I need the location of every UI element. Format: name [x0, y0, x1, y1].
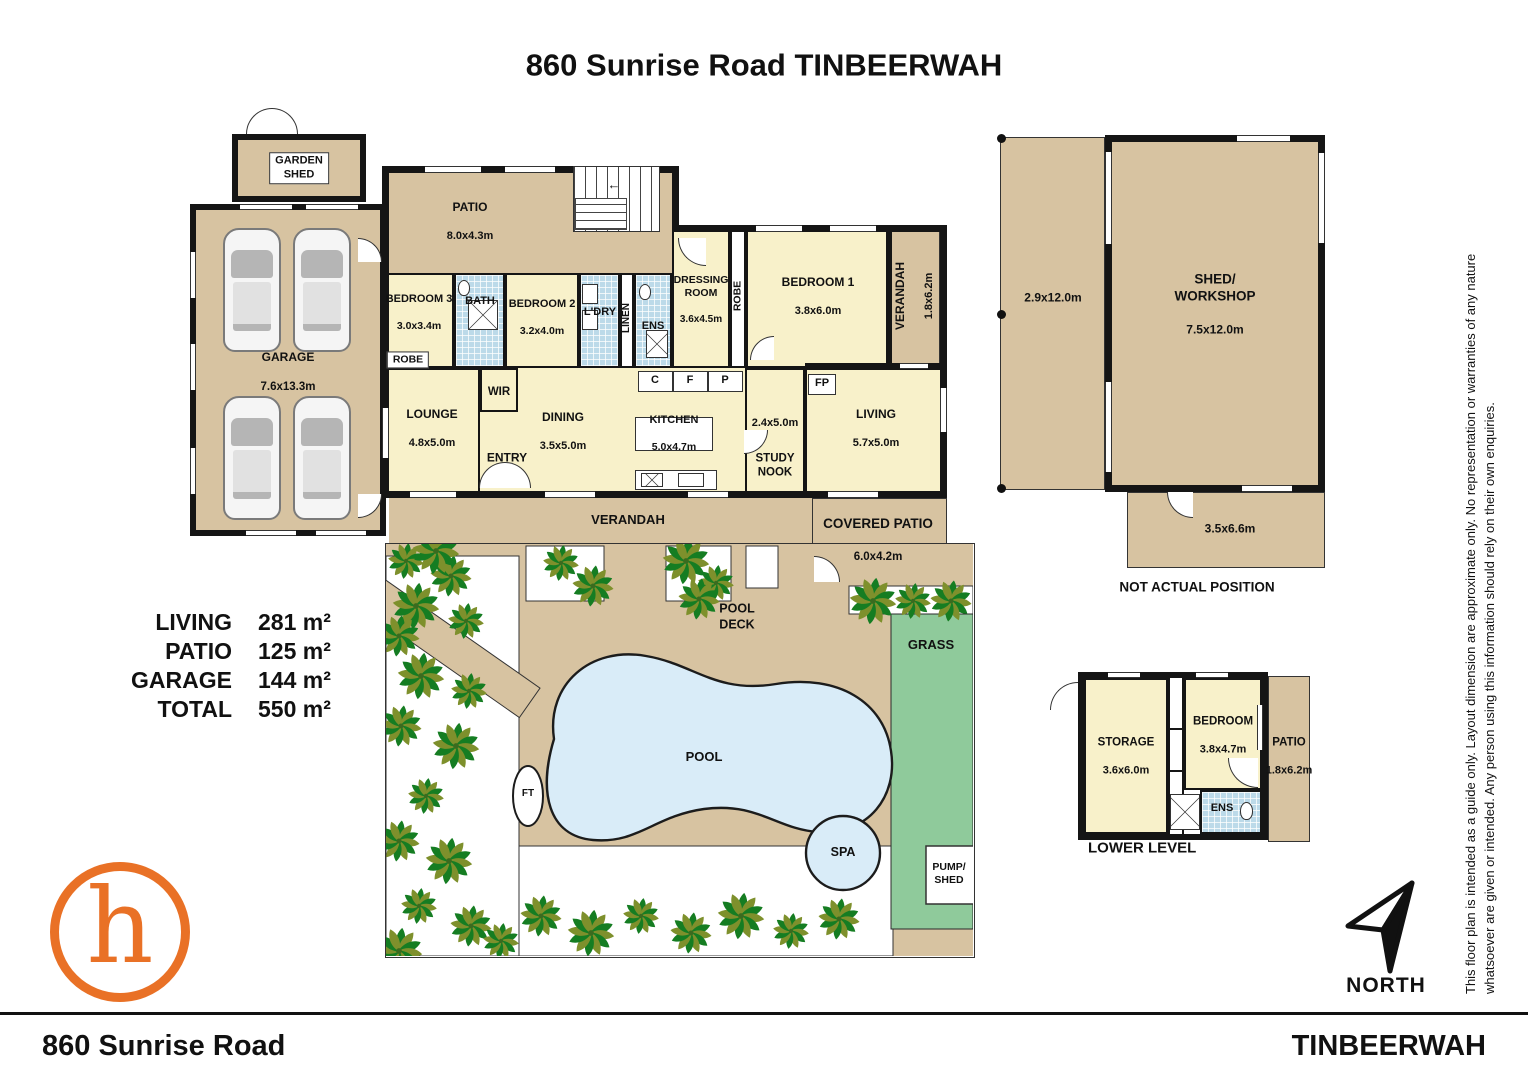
lower-bedroom-dims: 3.8x4.7m — [1193, 744, 1253, 758]
window — [1108, 672, 1140, 678]
area-value: 125 m² — [258, 638, 331, 665]
pool-deck-label: POOL DECK — [719, 601, 754, 632]
kitchen-dims: 5.0x4.7m — [650, 441, 699, 454]
area-label: LIVING — [96, 609, 232, 636]
kitchen-label: KITCHEN — [650, 414, 699, 428]
window — [828, 491, 878, 498]
sink-fixture — [678, 473, 704, 487]
garden-shed-door-arc — [246, 108, 272, 134]
carport-post — [997, 484, 1006, 493]
living-dims: 5.7x5.0m — [853, 437, 899, 451]
shower-fixture — [1170, 794, 1200, 830]
verandah-label: VERANDAH — [591, 512, 665, 528]
dressing-label: DRESSING ROOM — [674, 274, 729, 300]
patio-dims: 8.0x4.3m — [447, 230, 493, 244]
disclaimer-line: whatsoever are given or intended. Any pe… — [1481, 142, 1500, 994]
dressing-dims: 3.6x4.5m — [674, 313, 729, 326]
window — [830, 225, 876, 232]
robe-box-label: ROBE — [387, 351, 429, 368]
lounge-label: LOUNGE — [406, 407, 457, 422]
spa-label: SPA — [831, 845, 856, 861]
window — [688, 491, 728, 498]
lower-bedroom-label: BEDROOM — [1193, 715, 1253, 729]
patio-label: PATIO — [447, 200, 493, 215]
footer-address: 860 Sunrise Road — [42, 1030, 285, 1063]
window — [1105, 152, 1112, 244]
fireplace-label: FP — [815, 377, 829, 391]
area-value: 281 m² — [258, 609, 331, 636]
shed-workshop-label: SHED/ WORKSHOP — [1175, 271, 1256, 305]
stairs-lower-flight — [575, 198, 627, 230]
backyard-graphic — [386, 544, 973, 956]
lower-storage-door-arc — [1050, 682, 1078, 710]
wir-label: WIR — [488, 385, 510, 399]
footer-divider — [0, 1012, 1528, 1015]
robe-strip-label: ROBE — [731, 281, 744, 311]
window — [316, 530, 366, 536]
covered-patio-label: COVERED PATIO — [823, 516, 933, 533]
bedroom2-label: BEDROOM 2 — [509, 298, 576, 312]
study-nook-dims: 2.4x5.0m — [752, 417, 798, 431]
area-row: PATIO125 m² — [96, 637, 346, 666]
agency-logo-letter: h — [87, 874, 154, 978]
laundry-label: L'DRY — [584, 306, 616, 320]
bedroom2-dims: 3.2x4.0m — [509, 325, 576, 338]
window — [1318, 153, 1325, 243]
cabinet-p-label: P — [721, 374, 728, 388]
window — [756, 225, 802, 232]
grass-label: GRASS — [908, 637, 954, 653]
toilet-fixture — [1240, 802, 1253, 820]
window — [190, 344, 196, 390]
backyard — [385, 543, 975, 958]
lounge-dims: 4.8x5.0m — [406, 437, 457, 451]
north-arrow-icon — [1340, 878, 1432, 974]
lower-level-heading: LOWER LEVEL — [1088, 840, 1196, 859]
car-icon — [223, 228, 281, 352]
floor-plan-page: 860 Sunrise Road TINBEERWAH GARDEN SHED … — [0, 0, 1528, 1080]
bedroom3-dims: 3.0x3.4m — [386, 320, 453, 333]
garden-shed-label: GARDEN SHED — [269, 152, 329, 184]
wall — [672, 225, 947, 232]
cabinet-c-label: C — [651, 374, 659, 388]
window — [246, 530, 296, 536]
garden-shed-door-arc — [272, 108, 298, 134]
shower-fixture — [646, 330, 668, 358]
window — [410, 491, 456, 498]
study-nook-label: STUDY NOOK — [756, 452, 795, 481]
entry-label: ENTRY — [487, 451, 527, 466]
toilet-fixture — [458, 280, 470, 296]
window — [1257, 705, 1263, 750]
window — [1196, 672, 1228, 678]
window — [1242, 485, 1292, 492]
area-row: GARAGE144 m² — [96, 666, 346, 695]
fountain-label: FT — [522, 788, 534, 801]
shed-annex-dims: 3.5x6.6m — [1205, 522, 1256, 537]
bath-label: BATH — [465, 295, 495, 309]
side-verandah-label: VERANDAH — [893, 262, 908, 330]
window — [545, 491, 595, 498]
ensuite-label: ENS — [642, 320, 665, 334]
window — [505, 166, 555, 173]
pool-label: POOL — [686, 749, 723, 765]
bedroom3-label: BEDROOM 3 — [386, 293, 453, 307]
window — [306, 204, 358, 210]
carport-dims: 2.9x12.0m — [1024, 291, 1081, 306]
linen-label: LINEN — [621, 303, 634, 333]
side-verandah-dims: 1.8x6.2m — [923, 262, 937, 330]
window — [940, 388, 947, 432]
window — [382, 408, 389, 458]
window — [190, 252, 196, 298]
bedroom1-label: BEDROOM 1 — [782, 275, 855, 290]
window — [1237, 135, 1290, 142]
disclaimer-line: This floor plan is intended as a guide o… — [1462, 142, 1481, 994]
car-icon — [293, 228, 351, 352]
lower-patio-label: PATIO — [1266, 736, 1312, 750]
window — [1105, 382, 1112, 472]
lower-storage-dims: 3.6x6.0m — [1098, 765, 1155, 779]
not-actual-position-note: NOT ACTUAL POSITION — [1119, 580, 1274, 597]
agency-logo: h — [50, 862, 190, 1002]
cabinet-f-label: F — [687, 374, 694, 388]
page-title: 860 Sunrise Road TINBEERWAH — [526, 47, 1003, 86]
lower-storage-label: STORAGE — [1098, 736, 1155, 750]
dining-dims: 3.5x5.0m — [540, 440, 586, 454]
toilet-fixture — [639, 284, 651, 300]
area-label: PATIO — [96, 638, 232, 665]
shed-workshop-dims: 7.5x12.0m — [1175, 322, 1256, 337]
carport-post — [997, 310, 1006, 319]
lower-patio-dims: 1.8x6.2m — [1266, 765, 1312, 779]
area-label: TOTAL — [96, 696, 232, 723]
car-icon — [293, 396, 351, 520]
window — [240, 204, 292, 210]
area-row: TOTAL550 m² — [96, 695, 346, 724]
area-value: 550 m² — [258, 696, 331, 723]
window — [190, 448, 196, 494]
disclaimer: This floor plan is intended as a guide o… — [1462, 142, 1500, 994]
car-icon — [223, 396, 281, 520]
garage-label: GARAGE — [261, 350, 316, 365]
area-summary: LIVING281 m² PATIO125 m² GARAGE144 m² TO… — [96, 608, 346, 724]
wall — [672, 166, 679, 232]
north-label: NORTH — [1346, 973, 1426, 999]
carport-post — [997, 134, 1006, 143]
area-label: GARAGE — [96, 667, 232, 694]
covered-patio-dims: 6.0x4.2m — [823, 550, 933, 564]
window — [425, 166, 481, 173]
dining-label: DINING — [540, 410, 586, 425]
area-value: 144 m² — [258, 667, 331, 694]
garage-dims: 7.6x13.3m — [261, 380, 316, 394]
window — [900, 363, 928, 369]
cooktop-fixture — [641, 473, 663, 487]
lower-ensuite-label: ENS — [1211, 802, 1234, 816]
washer-fixture — [582, 284, 598, 304]
stairs-direction-arrow: ← — [608, 177, 621, 193]
footer-suburb: TINBEERWAH — [1292, 1030, 1486, 1063]
bedroom1-dims: 3.8x6.0m — [782, 305, 855, 319]
garden-bed — [746, 546, 778, 588]
carport-area — [1000, 137, 1105, 490]
area-row: LIVING281 m² — [96, 608, 346, 637]
pump-shed-label: PUMP/ SHED — [932, 861, 965, 887]
living-label: LIVING — [853, 407, 899, 422]
